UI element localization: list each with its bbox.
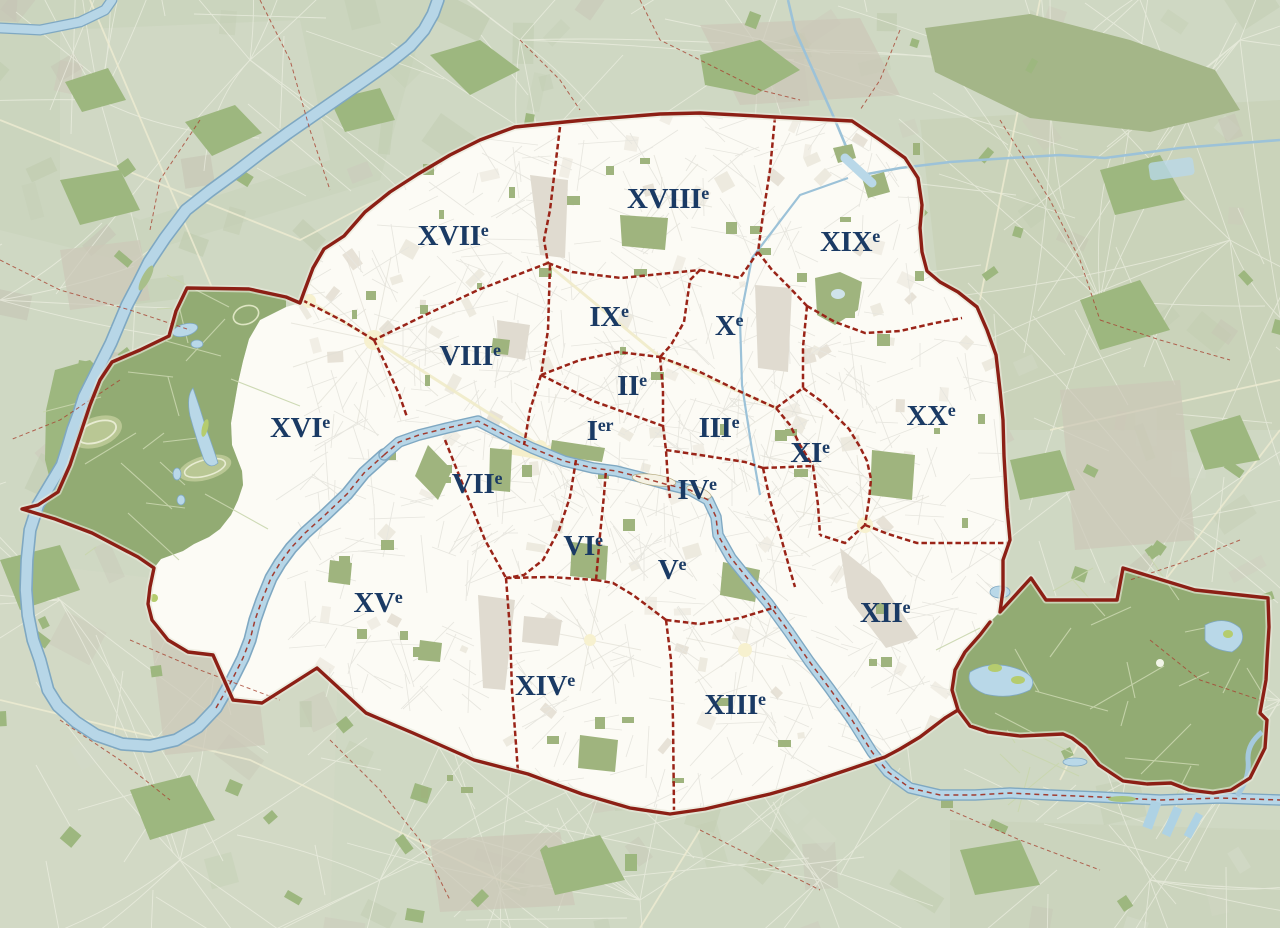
svg-text:VIIIe: VIIIe <box>439 340 501 372</box>
svg-text:XIXe: XIXe <box>820 226 880 258</box>
svg-text:XVIIIe: XVIIIe <box>627 183 709 215</box>
svg-text:XVIIe: XVIIe <box>418 220 489 252</box>
svg-text:XVIe: XVIe <box>270 412 330 444</box>
svg-text:XIVe: XIVe <box>515 670 575 702</box>
svg-text:XIIIe: XIIIe <box>704 689 766 721</box>
